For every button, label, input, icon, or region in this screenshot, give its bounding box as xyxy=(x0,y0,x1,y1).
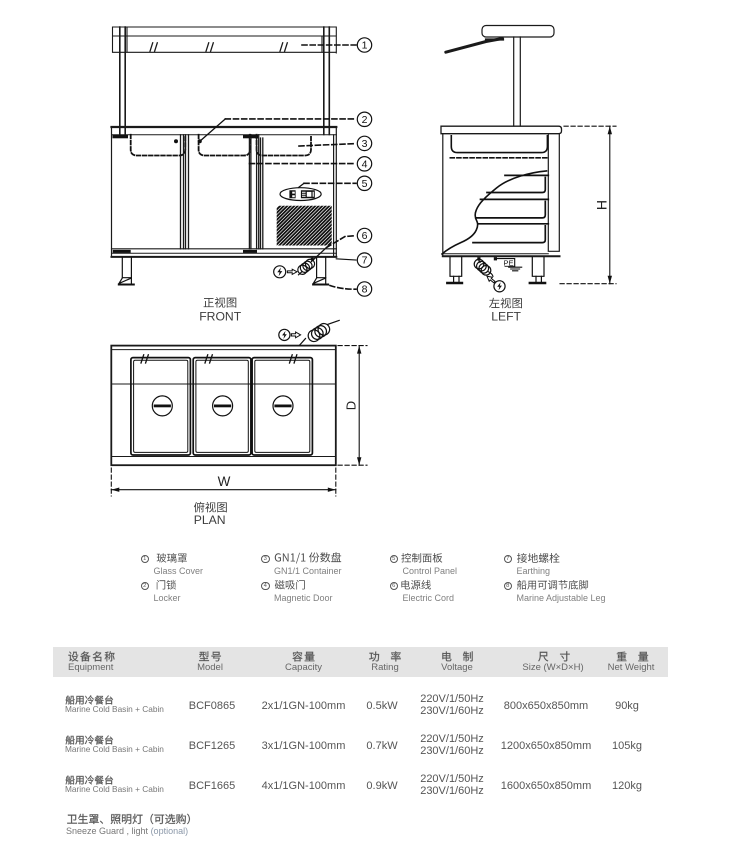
svg-text:H: H xyxy=(594,200,610,210)
svg-text:LEFT: LEFT xyxy=(491,309,521,323)
svg-text:7: 7 xyxy=(362,255,368,267)
svg-text:3: 3 xyxy=(362,138,368,150)
svg-text:1: 1 xyxy=(362,40,368,52)
svg-text:8: 8 xyxy=(362,284,368,296)
svg-text:6: 6 xyxy=(362,230,368,242)
svg-text:5: 5 xyxy=(362,178,368,190)
svg-text:FRONT: FRONT xyxy=(199,309,242,323)
svg-text:W: W xyxy=(218,474,231,489)
svg-text:D: D xyxy=(344,401,359,410)
svg-text:4: 4 xyxy=(362,158,368,170)
svg-text:2: 2 xyxy=(362,114,368,126)
svg-text:PLAN: PLAN xyxy=(194,513,226,527)
